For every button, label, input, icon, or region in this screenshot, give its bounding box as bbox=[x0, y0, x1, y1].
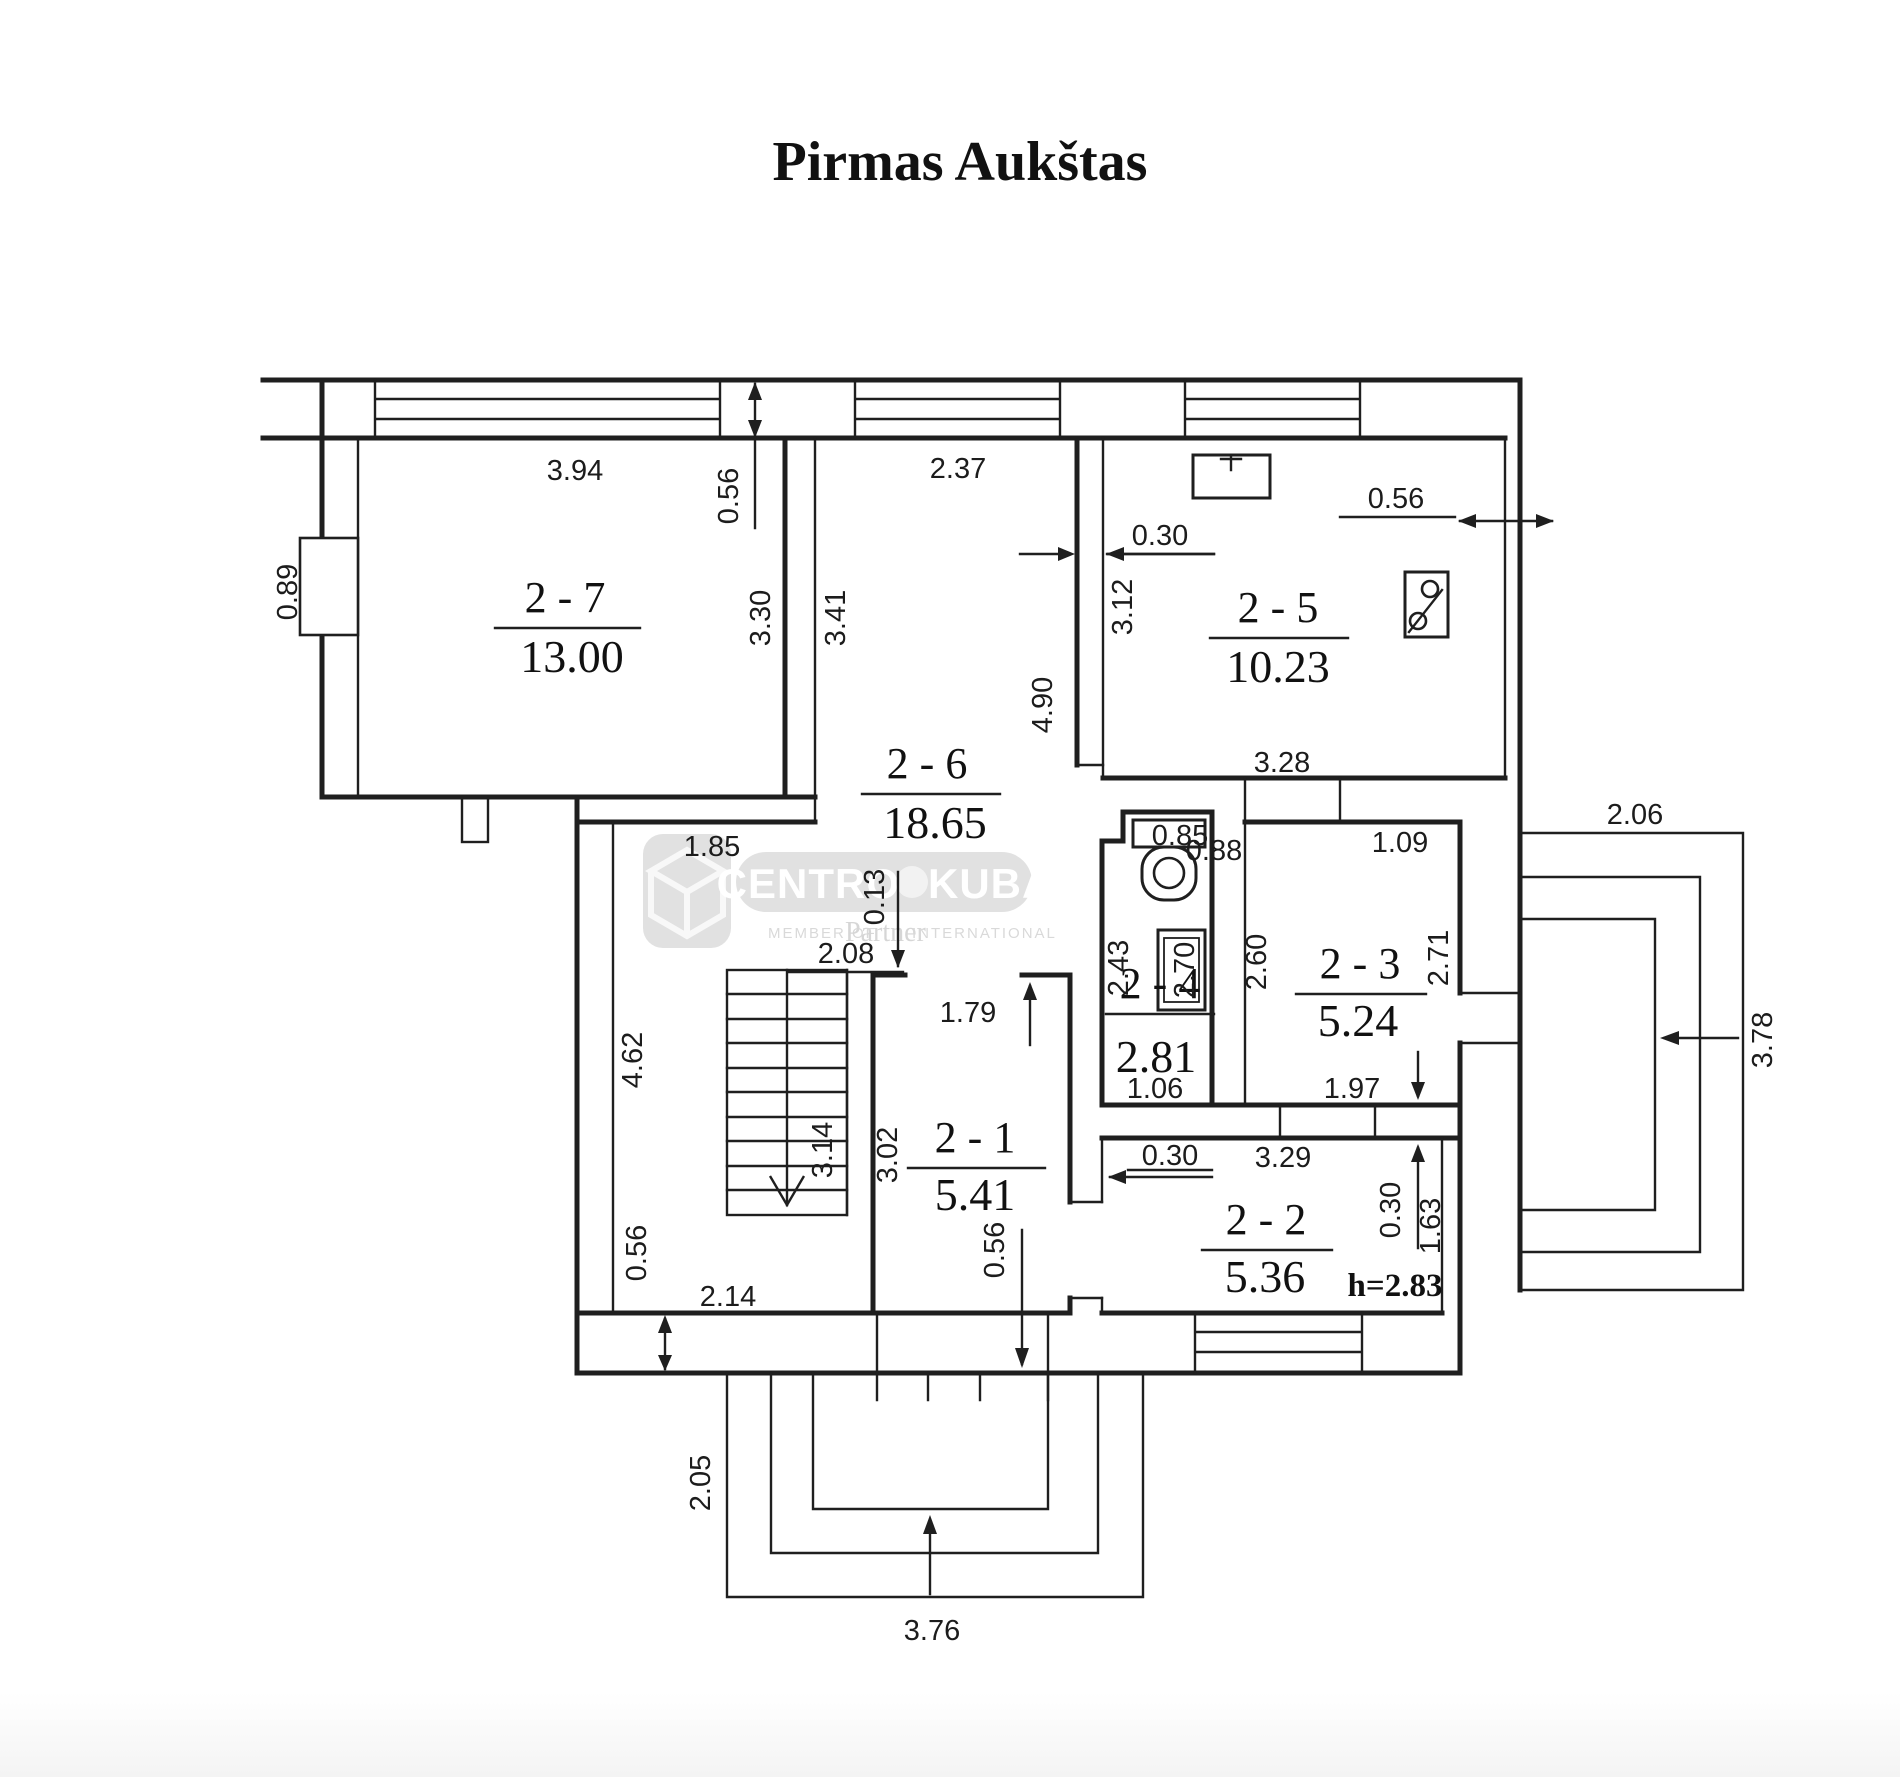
svg-text:5.41: 5.41 bbox=[935, 1169, 1016, 1220]
svg-text:2 - 7: 2 - 7 bbox=[525, 573, 606, 622]
dim-270: 2.70 bbox=[1169, 942, 1201, 998]
window-room-2-6 bbox=[855, 380, 1060, 438]
dim-208: 2.08 bbox=[818, 938, 874, 970]
dim-330: 3.30 bbox=[745, 590, 777, 646]
dim-013: 0.13 bbox=[859, 869, 891, 925]
watermark-brand-right: KUBAS bbox=[928, 860, 1082, 907]
terrace-steps bbox=[1520, 833, 1743, 1290]
dim-056-room21: 0.56 bbox=[979, 1222, 1011, 1278]
window-room-2-2-bottom bbox=[1195, 1313, 1362, 1373]
watermark-international: INTERNATIONAL bbox=[912, 925, 1057, 942]
dim-185: 1.85 bbox=[684, 831, 740, 863]
dim-030-kitchen: 0.30 bbox=[1132, 520, 1188, 552]
dim-378: 3.78 bbox=[1747, 1012, 1779, 1068]
dim-462: 4.62 bbox=[617, 1032, 649, 1088]
room-label-2-6: 2 - 6 18.65 bbox=[862, 739, 1000, 848]
dim-328: 3.28 bbox=[1254, 747, 1310, 779]
floor-plan-page: Pirmas Aukštas CENTRO KUBAS MEMBER OF Pa… bbox=[0, 0, 1900, 1777]
dim-237: 2.37 bbox=[930, 453, 986, 485]
dim-197: 1.97 bbox=[1324, 1073, 1380, 1105]
svg-text:10.23: 10.23 bbox=[1226, 641, 1330, 692]
watermark-dot-icon bbox=[896, 866, 928, 898]
height-note: h=2.83 bbox=[1348, 1268, 1443, 1304]
dim-089: 0.89 bbox=[272, 564, 304, 620]
terrace-entry-arrow-icon bbox=[1660, 1031, 1679, 1045]
dim-030-room22: 0.30 bbox=[1142, 1140, 1198, 1172]
dim-085: 0.85 bbox=[1152, 820, 1208, 852]
dim-109: 1.09 bbox=[1372, 827, 1428, 859]
svg-text:2 - 2: 2 - 2 bbox=[1226, 1195, 1307, 1244]
room-label-2-2: 2 - 2 5.36 bbox=[1202, 1195, 1332, 1302]
svg-text:2 - 5: 2 - 5 bbox=[1238, 583, 1319, 632]
room-label-2-3: 2 - 3 5.24 bbox=[1296, 939, 1426, 1046]
dim-056-bottomleft: 0.56 bbox=[621, 1225, 653, 1281]
svg-text:2 - 1: 2 - 1 bbox=[935, 1113, 1016, 1162]
dim-271: 2.71 bbox=[1423, 930, 1455, 986]
page-title: Pirmas Aukštas bbox=[773, 131, 1148, 193]
svg-text:18.65: 18.65 bbox=[883, 797, 987, 848]
window-room-2-7 bbox=[375, 380, 720, 438]
dim-205: 2.05 bbox=[685, 1455, 717, 1511]
dim-329: 3.29 bbox=[1255, 1142, 1311, 1174]
dim-214: 2.14 bbox=[700, 1281, 756, 1313]
dim-106: 1.06 bbox=[1127, 1073, 1183, 1105]
room-label-2-7: 2 - 7 13.00 bbox=[495, 573, 640, 682]
dimension-texts-layer: 3.94 2.37 0.56 3.30 3.41 0.89 0.30 0.56 … bbox=[272, 453, 1779, 1647]
room-label-2-1: 2 - 1 5.41 bbox=[908, 1113, 1045, 1220]
dim-030-right: 0.30 bbox=[1375, 1182, 1407, 1238]
entrance-porch-steps bbox=[727, 1373, 1143, 1597]
dim-056-topleft: 0.56 bbox=[713, 468, 745, 524]
dim-394: 3.94 bbox=[547, 455, 603, 487]
dim-376: 3.76 bbox=[904, 1615, 960, 1647]
floor-plan-drawing: Pirmas Aukštas CENTRO KUBAS MEMBER OF Pa… bbox=[0, 0, 1900, 1777]
svg-text:13.00: 13.00 bbox=[520, 631, 624, 682]
dim-056-right: 0.56 bbox=[1368, 483, 1424, 515]
electric-meter-icon bbox=[1405, 572, 1448, 637]
kitchen-sink-icon bbox=[1193, 455, 1270, 498]
dim-243: 2.43 bbox=[1103, 940, 1135, 996]
room-label-2-5: 2 - 5 10.23 bbox=[1210, 583, 1348, 692]
dim-163: 1.63 bbox=[1415, 1198, 1447, 1254]
svg-text:2 - 6: 2 - 6 bbox=[887, 739, 968, 788]
dim-260: 2.60 bbox=[1241, 934, 1273, 990]
dim-312: 3.12 bbox=[1107, 579, 1139, 635]
svg-text:5.36: 5.36 bbox=[1225, 1251, 1306, 1302]
porch-entry-arrow-icon bbox=[923, 1515, 937, 1534]
svg-text:2 - 3: 2 - 3 bbox=[1320, 939, 1401, 988]
dim-314: 3.14 bbox=[807, 1122, 839, 1178]
dim-206: 2.06 bbox=[1607, 799, 1663, 831]
window-left-wall-2-7 bbox=[300, 538, 358, 635]
bottom-fade-band bbox=[0, 1692, 1900, 1777]
window-room-2-5 bbox=[1185, 380, 1360, 438]
dim-179: 1.79 bbox=[940, 997, 996, 1029]
dim-341: 3.41 bbox=[820, 590, 852, 646]
dim-302: 3.02 bbox=[872, 1127, 904, 1183]
svg-text:5.24: 5.24 bbox=[1318, 995, 1399, 1046]
dim-490: 4.90 bbox=[1027, 677, 1059, 733]
